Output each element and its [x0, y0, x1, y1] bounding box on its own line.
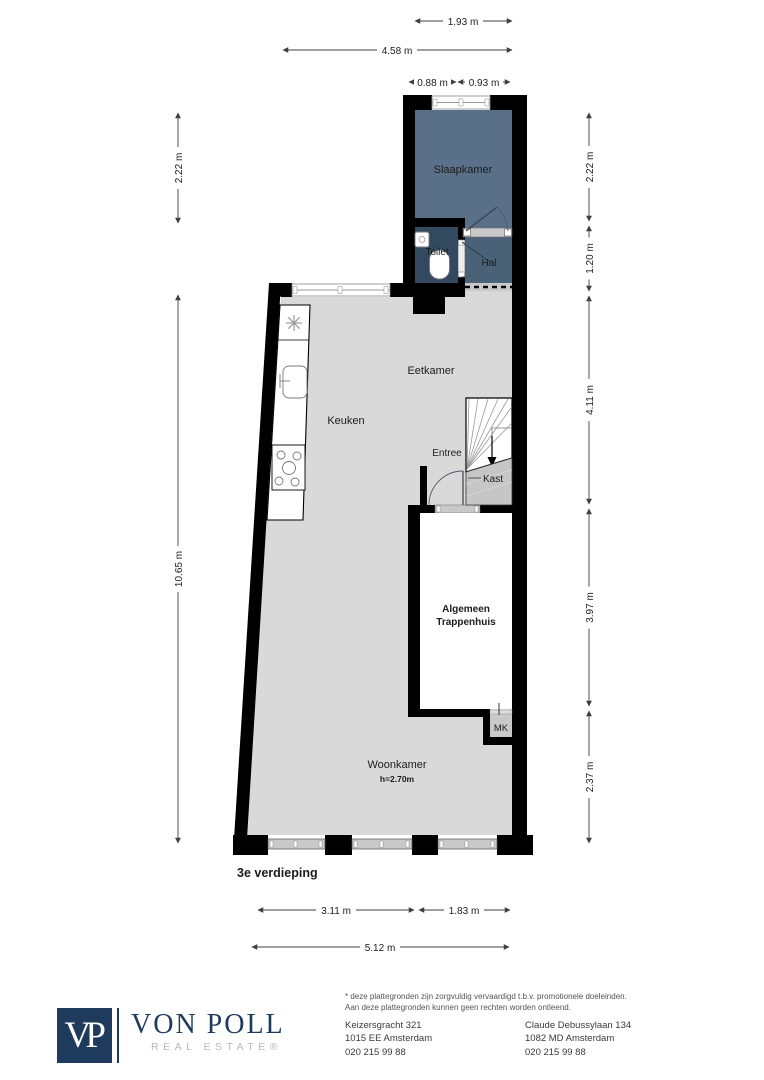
dim-right-5: 2.37 m — [583, 711, 596, 843]
svg-text:1.93 m: 1.93 m — [448, 17, 479, 28]
disclaimer: * deze plattegronden zijn zorgvuldig ver… — [345, 992, 627, 1014]
svg-text:4.11 m: 4.11 m — [585, 385, 596, 415]
svg-text:2.22 m: 2.22 m — [174, 153, 185, 184]
disclaimer-line-1: * deze plattegronden zijn zorgvuldig ver… — [345, 992, 627, 1003]
dim-top-window-left: 0.88 m — [409, 76, 456, 89]
floorplan: Slaapkamer Toilet Hal Eetkamer Keuken En… — [233, 95, 533, 880]
entree-wall-stub — [420, 466, 427, 506]
office-address-1: Keizersgracht 321 1015 EE Amsterdam 020 … — [345, 1019, 432, 1059]
svg-text:4.58 m: 4.58 m — [382, 46, 413, 57]
label-entree: Entree — [432, 448, 462, 459]
svg-text:2.37 m: 2.37 m — [585, 762, 596, 793]
label-slaapkamer: Slaapkamer — [434, 164, 493, 176]
svg-text:2.22 m: 2.22 m — [585, 152, 596, 183]
dim-left-main: 10.65 m — [172, 295, 185, 843]
vonpoll-logo: VP — [57, 1008, 112, 1063]
office-address-2: Claude Debussylaan 134 1082 MD Amsterdam… — [525, 1019, 631, 1059]
bottom-windows — [268, 839, 497, 849]
svg-text:10.65 m: 10.65 m — [174, 551, 185, 587]
brand-subtitle: REAL ESTATE® — [151, 1041, 282, 1053]
label-hal: Hal — [481, 258, 496, 269]
logo-divider — [117, 1008, 119, 1063]
extractor-icon — [286, 315, 302, 331]
label-woonkamer: Woonkamer — [367, 759, 426, 771]
top-wall-window — [292, 284, 390, 296]
floor-label: 3e verdieping — [237, 866, 318, 880]
svg-text:5.12 m: 5.12 m — [365, 943, 396, 954]
office-2-phone: 020 215 99 88 — [525, 1046, 631, 1059]
label-trappenhuis-2: Trappenhuis — [436, 617, 496, 628]
dim-right-2: 1.20 m — [583, 226, 596, 291]
svg-text:3.11 m: 3.11 m — [321, 906, 351, 917]
brand-name: VON POLL — [131, 1009, 285, 1041]
svg-text:3.97 m: 3.97 m — [585, 592, 596, 623]
label-kast: Kast — [483, 474, 503, 485]
label-eetkamer: Eetkamer — [407, 365, 454, 377]
dim-top-outer: 4.58 m — [283, 44, 512, 57]
trappenhuis-threshold — [435, 505, 480, 513]
dim-bottom-right: 1.83 m — [419, 904, 510, 917]
svg-text:1.20 m: 1.20 m — [585, 243, 596, 274]
logo-initials: VP — [65, 1014, 105, 1057]
hal-open-boundary — [465, 283, 512, 297]
office-2-street: Claude Debussylaan 134 — [525, 1019, 631, 1032]
dim-bottom-total: 5.12 m — [252, 941, 509, 954]
svg-text:0.88 m: 0.88 m — [417, 78, 448, 89]
svg-text:1.83 m: 1.83 m — [449, 906, 480, 917]
chimney-stub — [413, 297, 445, 314]
dim-right-3: 4.11 m — [583, 296, 596, 504]
label-mk: MK — [494, 723, 509, 734]
washbasin-icon — [415, 232, 429, 247]
dim-top-inner: 1.93 m — [415, 15, 512, 28]
office-1-street: Keizersgracht 321 — [345, 1019, 432, 1032]
stove-icon — [272, 445, 305, 490]
label-keuken: Keuken — [327, 415, 364, 427]
label-toilet: Toilet — [425, 247, 449, 258]
office-2-city: 1082 MD Amsterdam — [525, 1032, 631, 1045]
sink-icon — [280, 366, 307, 398]
dim-bottom-left: 3.11 m — [258, 904, 414, 917]
label-ceiling-height: h=2.70m — [380, 774, 415, 784]
svg-text:0.93 m: 0.93 m — [469, 78, 500, 89]
disclaimer-line-2: Aan deze plattegronden kunnen geen recht… — [345, 1003, 627, 1014]
floorplan-canvas: Slaapkamer Toilet Hal Eetkamer Keuken En… — [0, 0, 764, 1080]
bedroom-top-window — [432, 96, 490, 109]
dim-right-1: 2.22 m — [583, 113, 596, 221]
label-trappenhuis-1: Algemeen — [442, 604, 490, 615]
office-1-city: 1015 EE Amsterdam — [345, 1032, 432, 1045]
dim-top-window-right: 0.93 m — [458, 76, 510, 89]
office-1-phone: 020 215 99 88 — [345, 1046, 432, 1059]
dim-left-upper: 2.22 m — [172, 113, 185, 223]
dim-right-4: 3.97 m — [583, 509, 596, 706]
